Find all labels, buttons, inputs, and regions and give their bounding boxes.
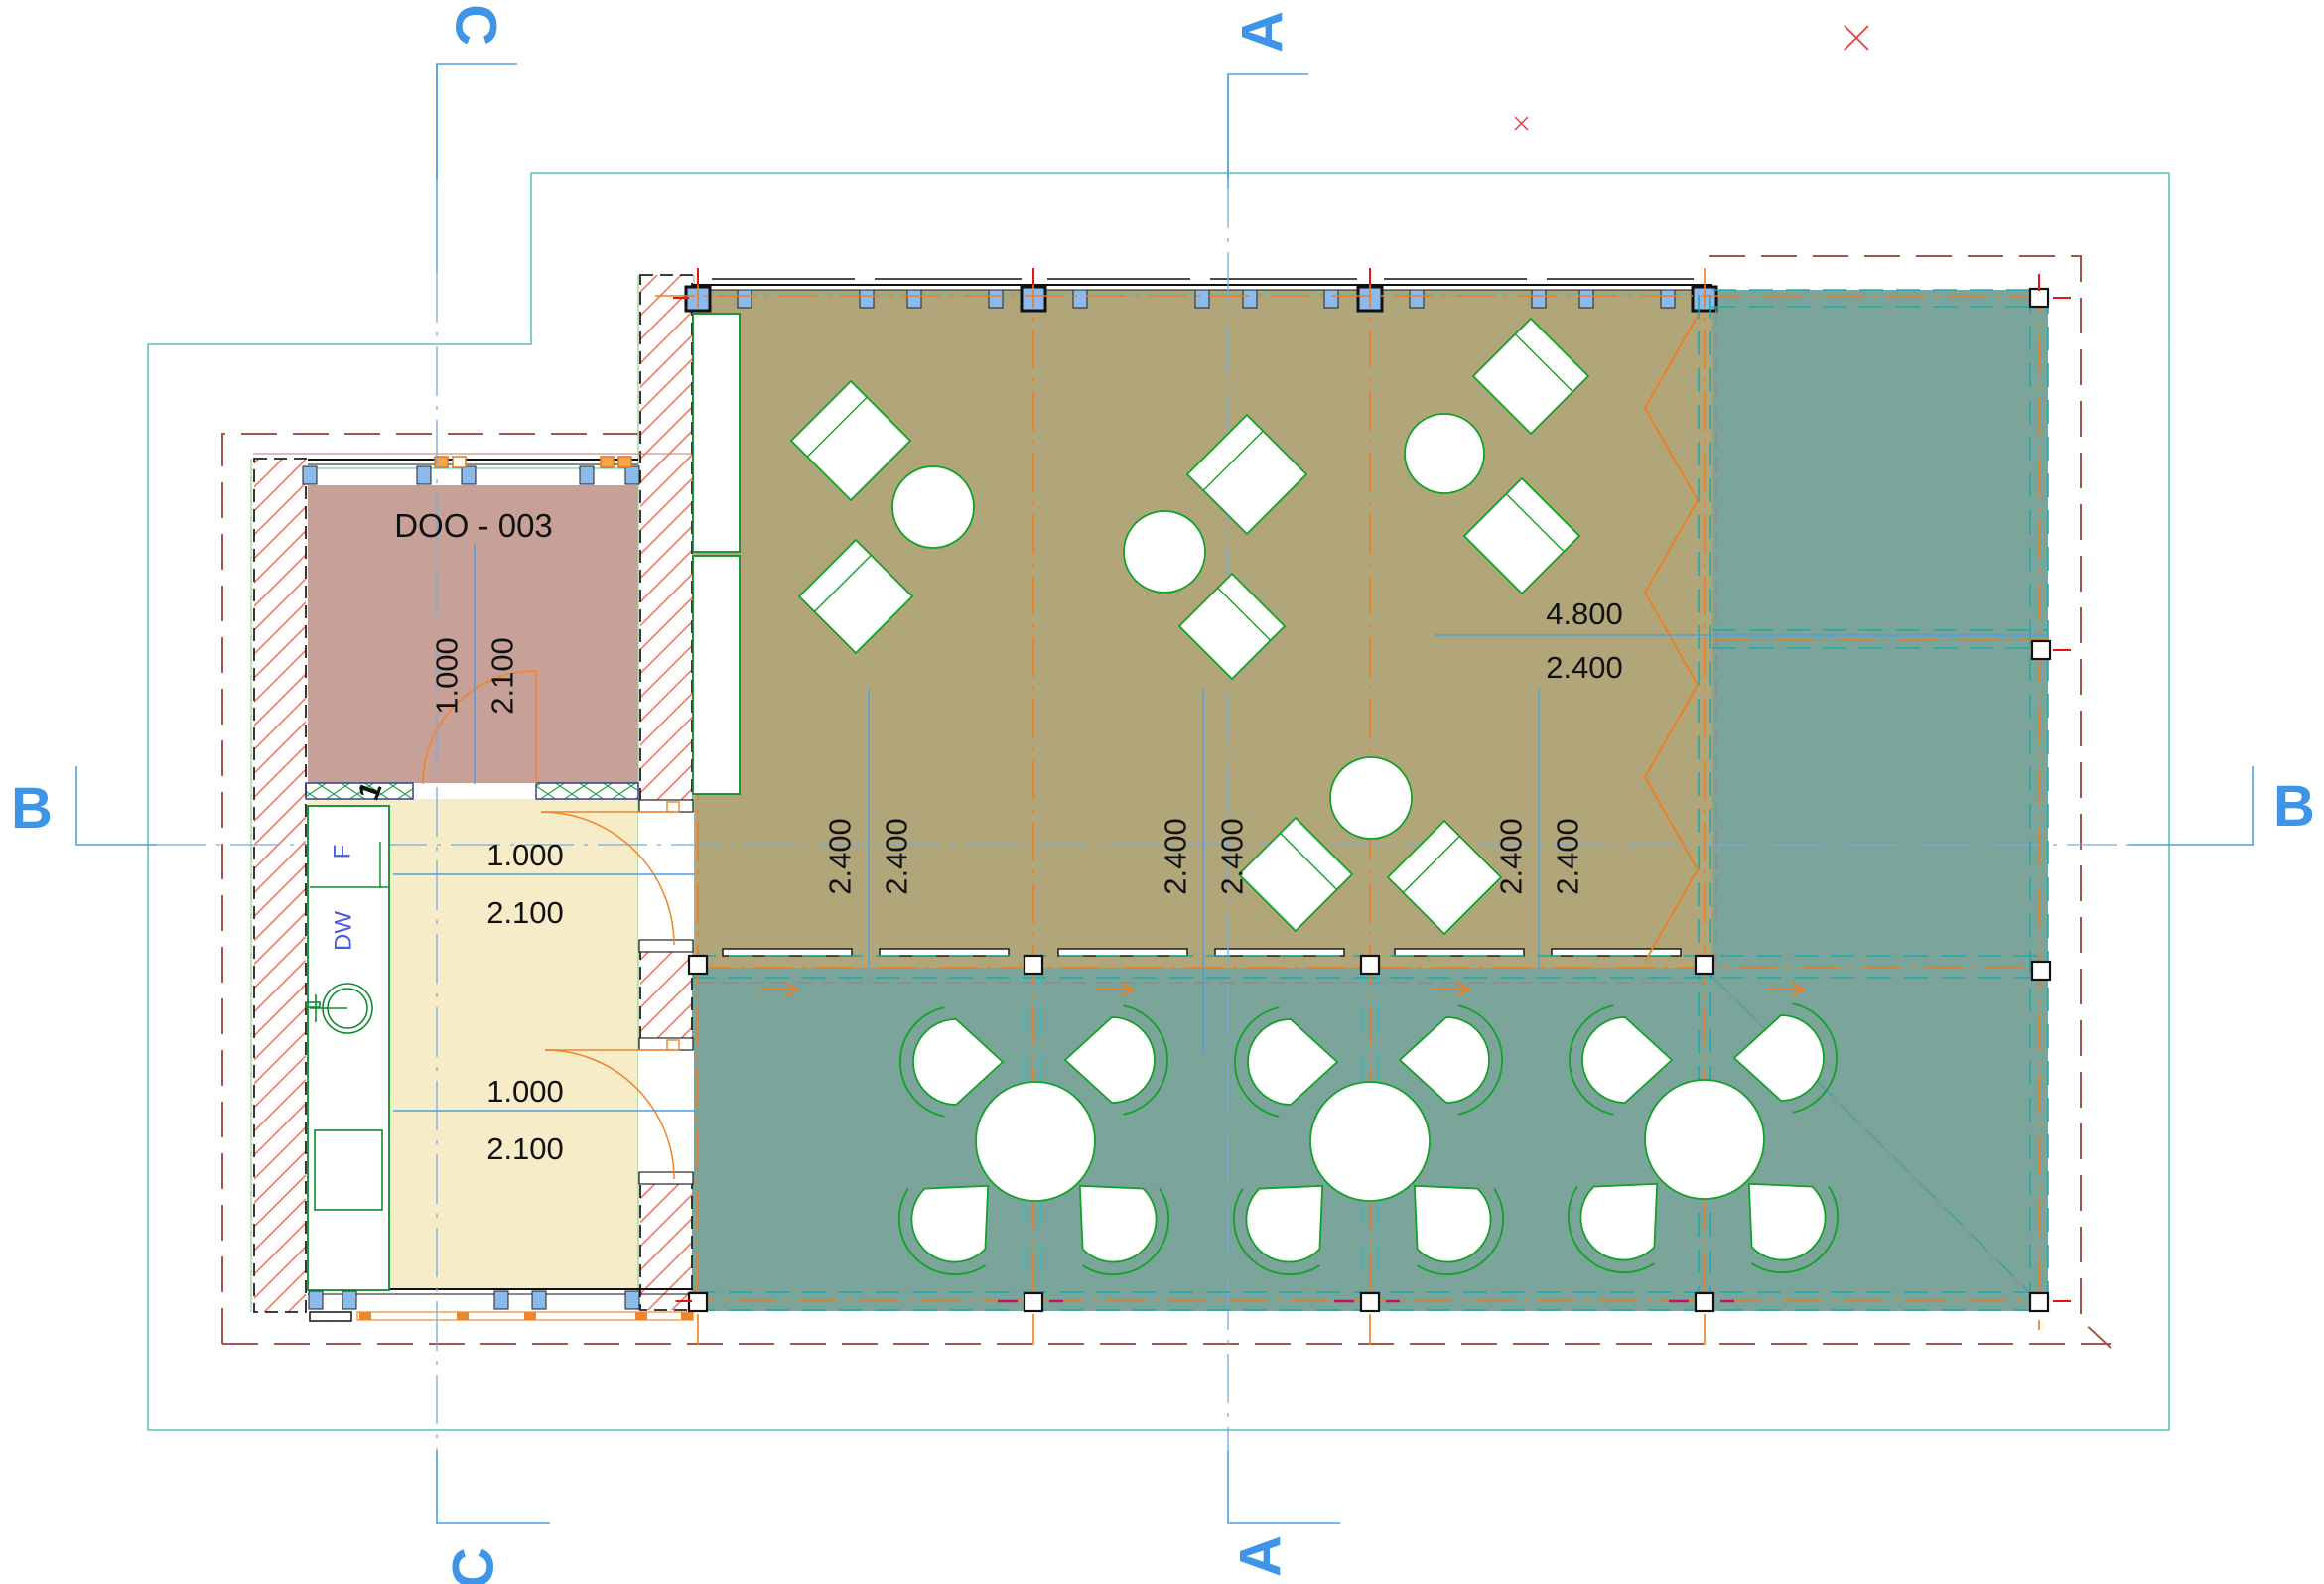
svg-text:2.400: 2.400 <box>880 818 914 895</box>
svg-text:2.400: 2.400 <box>1546 650 1623 685</box>
svg-text:2.100: 2.100 <box>486 1131 564 1166</box>
svg-text:1.000: 1.000 <box>430 637 465 715</box>
svg-text:A: A <box>1231 11 1296 53</box>
svg-text:F: F <box>330 845 356 859</box>
svg-text:2.400: 2.400 <box>1159 818 1193 895</box>
svg-text:2.400: 2.400 <box>823 818 858 895</box>
svg-text:DOO - 003: DOO - 003 <box>394 507 553 544</box>
svg-text:C: C <box>444 4 508 46</box>
svg-text:C: C <box>442 1547 506 1584</box>
svg-text:DW: DW <box>331 911 357 951</box>
svg-text:1.000: 1.000 <box>486 1074 564 1109</box>
svg-text:2.400: 2.400 <box>1494 818 1529 895</box>
svg-text:A: A <box>1229 1535 1294 1577</box>
svg-text:2.400: 2.400 <box>1551 818 1585 895</box>
svg-text:1.000: 1.000 <box>486 838 564 872</box>
svg-text:B: B <box>11 776 53 841</box>
svg-text:2.400: 2.400 <box>1215 818 1250 895</box>
svg-text:2.100: 2.100 <box>485 637 520 715</box>
svg-text:4.800: 4.800 <box>1546 596 1623 631</box>
svg-text:B: B <box>2273 774 2315 839</box>
svg-text:2.100: 2.100 <box>486 895 564 930</box>
